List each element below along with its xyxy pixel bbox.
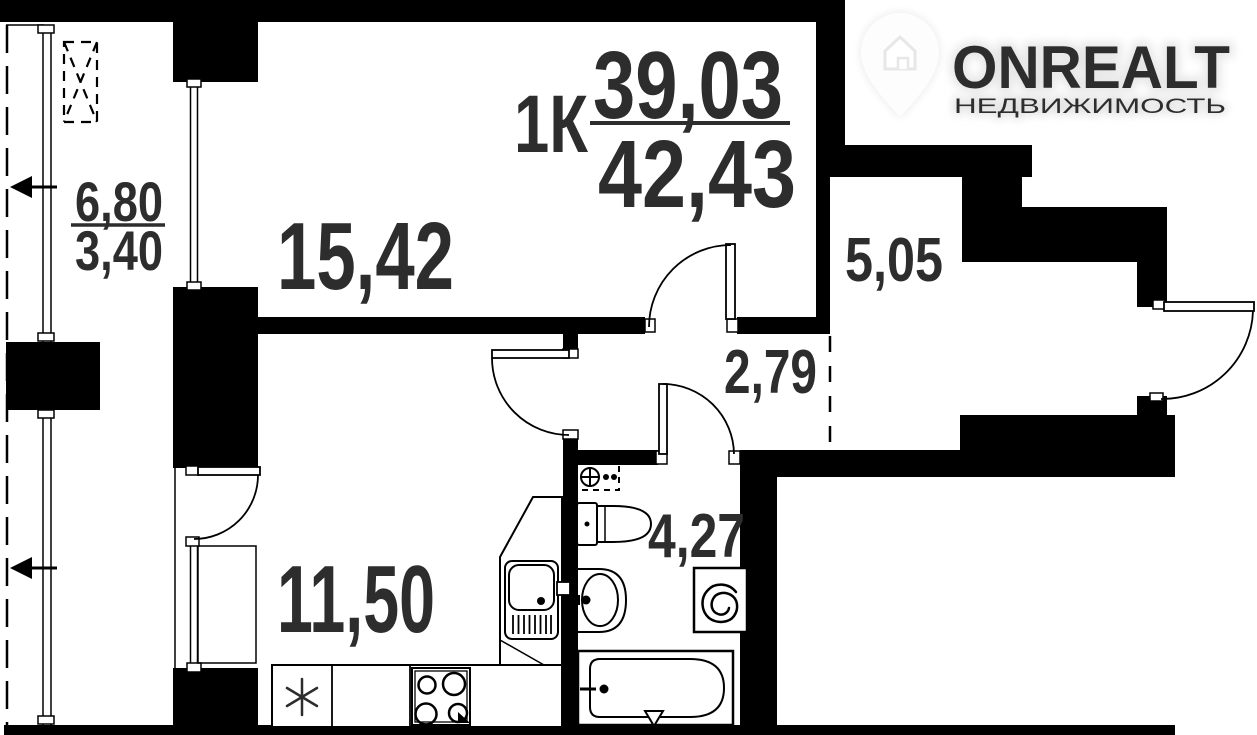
kitchen-door [492,349,578,439]
door-leaf [659,384,667,454]
door-swing-arc [194,475,258,539]
balcony-area-half: 3,40 [75,219,163,282]
shaft-symbol [64,42,97,122]
floor-plan: ONREALT НЕДВИЖИМОСТЬ ONREALT НЕДВИЖИМОСТ… [0,0,1257,735]
toilet [577,503,651,545]
wall-left-block-top [173,0,258,82]
wall-hall-step-horizontal [1022,207,1167,262]
floor-plan-svg: ONREALT НЕДВИЖИМОСТЬ ONREALT НЕДВИЖИМОСТ… [0,0,1257,735]
stove [412,668,470,725]
wall-bottom [4,725,1175,735]
wall-balcony-pier [6,342,100,410]
faucet-icon [600,685,609,694]
entrance-door [1150,300,1254,401]
house-door-icon [898,58,908,69]
wall-top [0,0,845,22]
faucet-mount [557,582,570,595]
door-leaf [198,467,260,475]
title-rooms-label: 1К [514,79,589,170]
bathroom-area-label: 4,27 [648,502,745,571]
door-swing-arc [492,358,569,435]
faucet-icon [582,596,591,605]
wall-hall-step-vertical [962,177,1022,262]
door-leaf [492,350,569,358]
faucet-icon [537,597,545,605]
brand-text: ONREALT [952,34,1230,101]
door-hinge-cap [186,466,199,475]
kitchen-window [191,546,198,666]
bathtub [578,651,733,726]
washing-machine [694,568,747,632]
door-swing-arc [1161,311,1253,399]
kitchen-area-label: 11,50 [277,546,435,653]
title-area-lower: 42,43 [598,121,796,228]
door-swing-arc [649,245,731,327]
kitchen-window-reveal [198,546,256,663]
wall-living-right-upper [816,0,845,150]
living-room-door [645,244,738,332]
wall-hall-top [830,145,1032,177]
hallway-area-label: 5,05 [845,226,943,295]
door-leaf [726,244,735,319]
direction-arrow-top [10,176,57,198]
wall-living-bottom-left [258,317,645,334]
door-hinge-cap [727,319,738,332]
faucet-mount [574,595,580,605]
door-leaf [1164,302,1254,311]
corridor-area-label: 2,79 [724,338,817,407]
wall-kitchen-partition-pier [563,334,578,349]
vent-meter-symbol [577,464,619,490]
wall-living-right-lower [816,148,830,334]
wall-left-block-bottom [173,668,258,727]
living-room-area-label: 15,42 [277,203,454,310]
balcony-door [186,466,260,546]
tagline-text: НЕДВИЖИМОСТЬ [954,95,1226,118]
bathroom-sink [574,569,626,632]
wall-hall-south-bar [740,450,1175,477]
direction-arrow-bottom [10,557,57,579]
wall-bathroom-top [563,450,658,465]
wall-living-bottom-right [737,317,830,334]
wall-left-block-mid [173,287,258,468]
onrealt-watermark: ONREALT НЕДВИЖИМОСТЬ ONREALT НЕДВИЖИМОСТ… [861,13,1230,118]
living-room-window [191,84,198,284]
